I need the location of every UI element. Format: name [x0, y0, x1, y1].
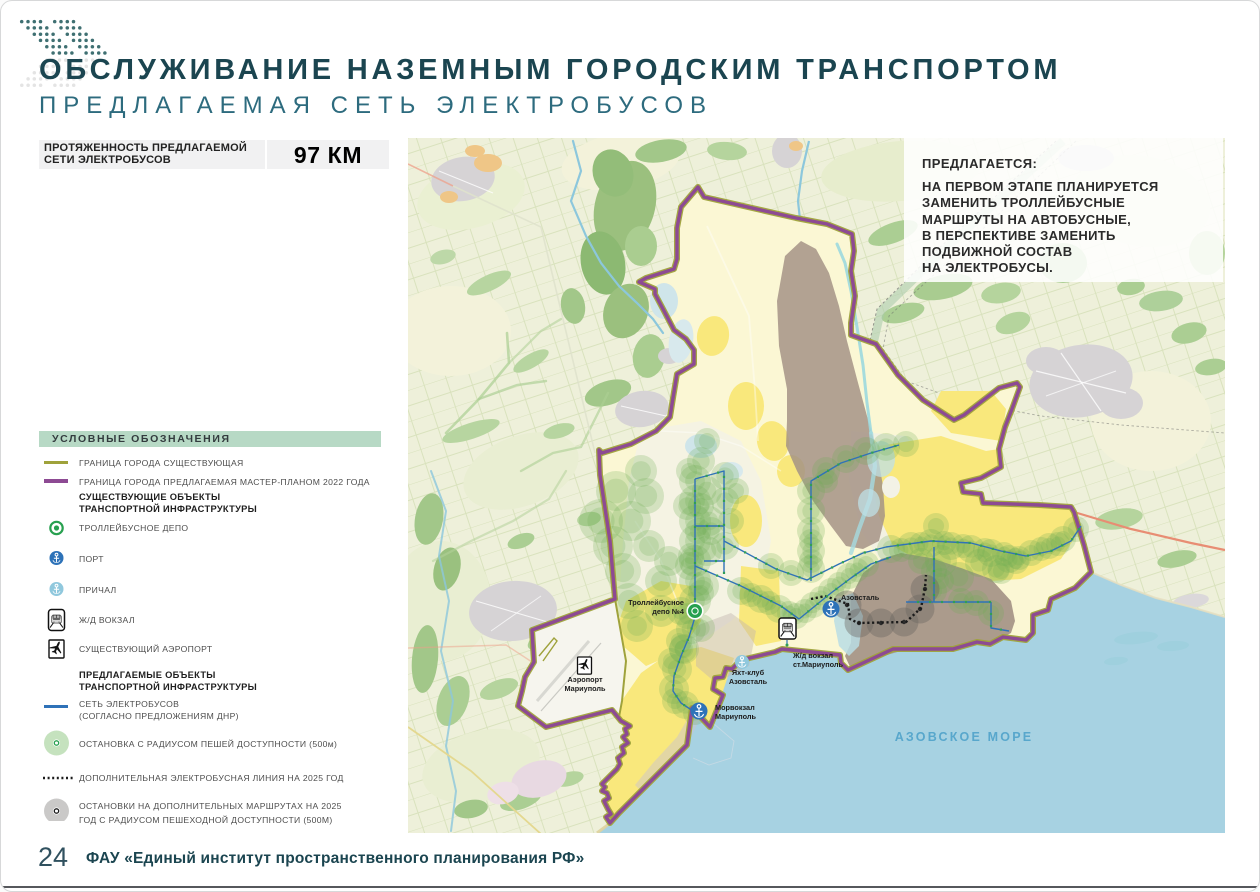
svg-text:Азовсталь: Азовсталь: [841, 593, 880, 602]
svg-text:ст.Мариуполь: ст.Мариуполь: [793, 660, 844, 669]
svg-text:Мариуполь: Мариуполь: [715, 712, 757, 721]
svg-text:Азовсталь: Азовсталь: [729, 677, 768, 686]
svg-text:АЗОВСКОЕ МОРЕ: АЗОВСКОЕ МОРЕ: [895, 730, 1034, 744]
svg-text:Аэропорт: Аэропорт: [567, 675, 603, 684]
svg-text:Яхт-клуб: Яхт-клуб: [732, 668, 765, 677]
svg-text:Ж/д вокзал: Ж/д вокзал: [792, 651, 833, 660]
svg-text:Морвокзал: Морвокзал: [715, 703, 755, 712]
svg-text:депо №4: депо №4: [652, 607, 685, 616]
svg-text:Троллейбусное: Троллейбусное: [628, 598, 684, 607]
svg-text:Мариуполь: Мариуполь: [564, 684, 606, 693]
